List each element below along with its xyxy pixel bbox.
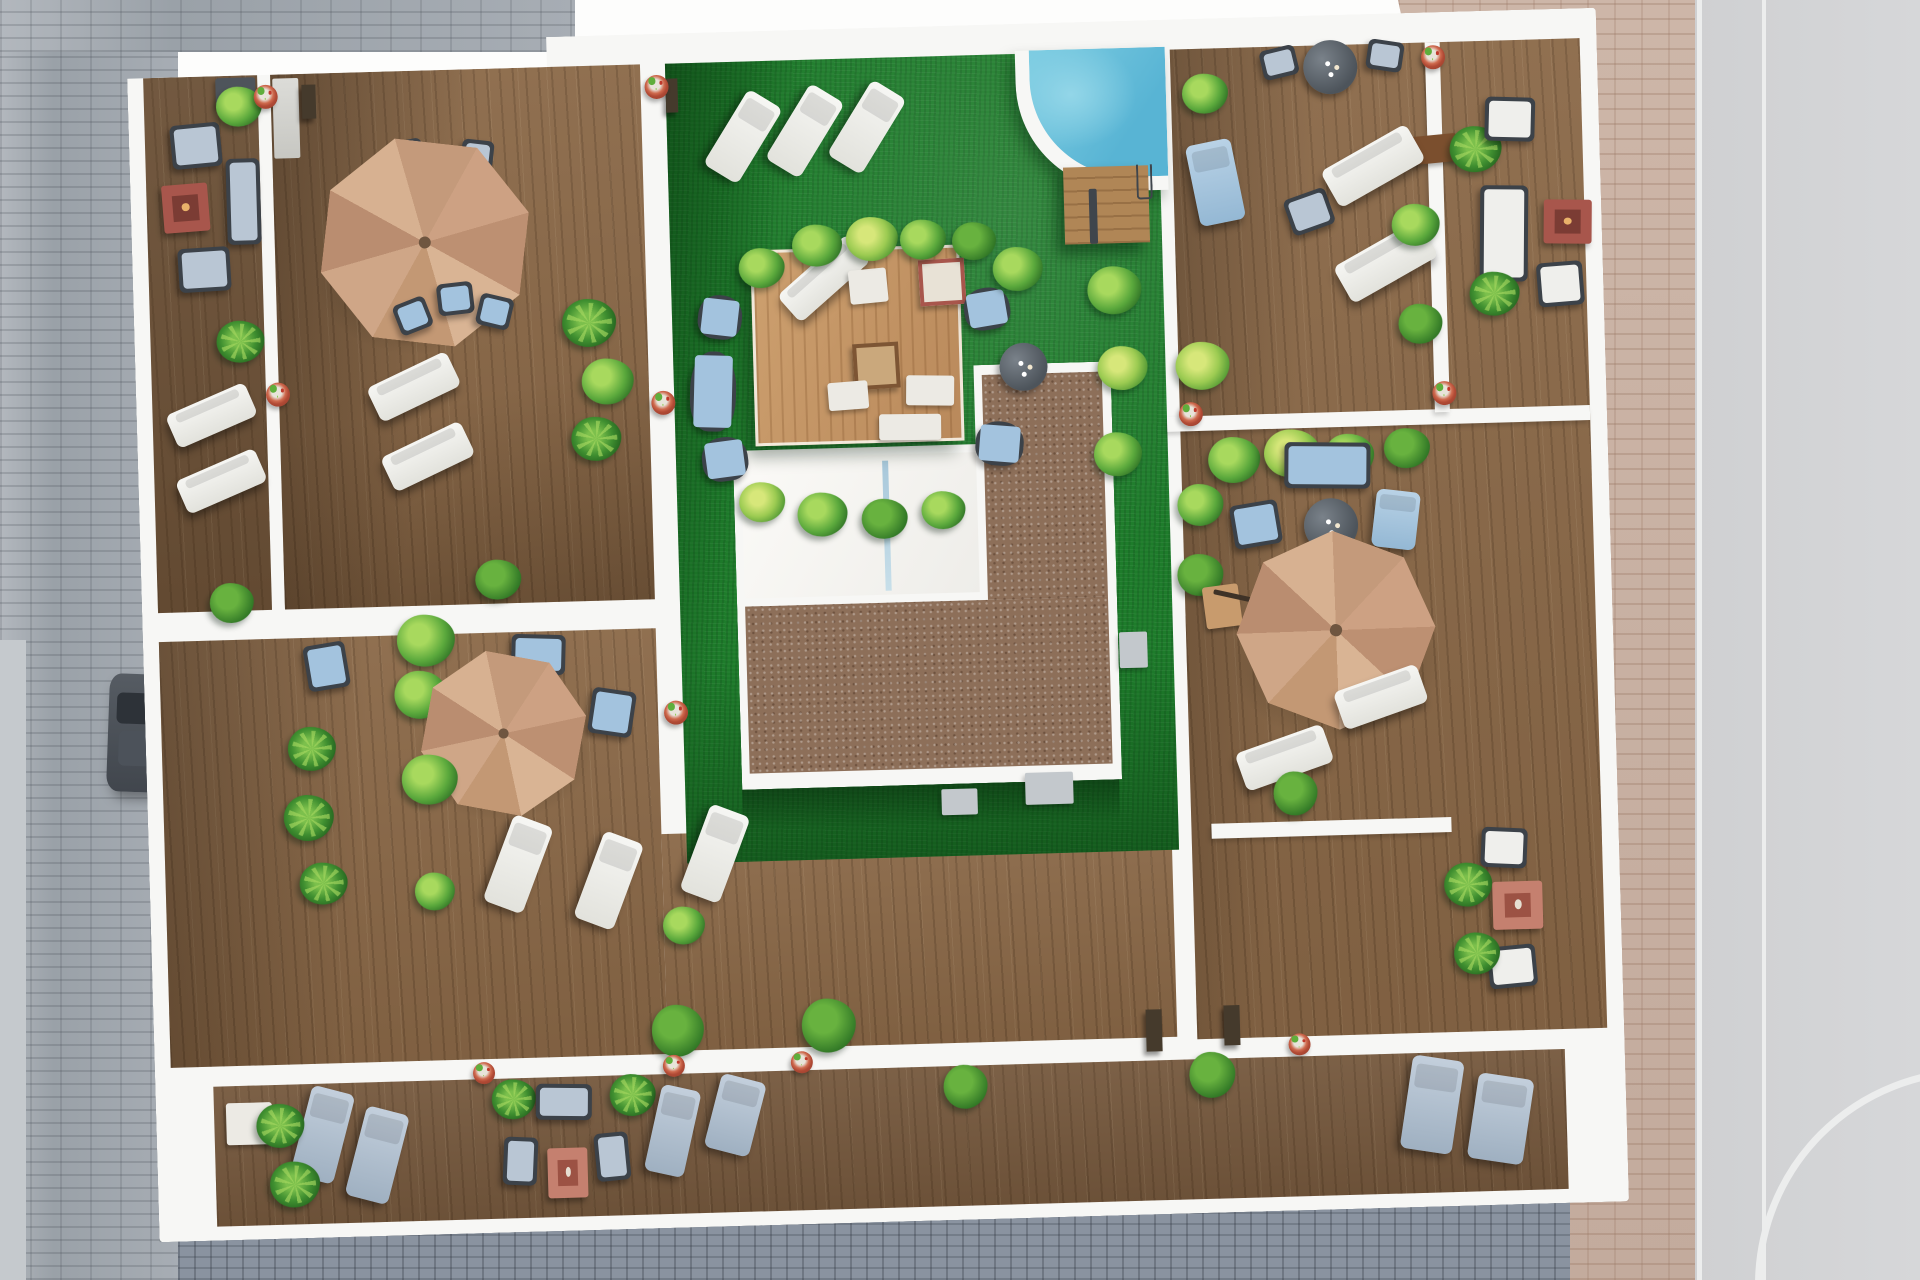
armchair-gray (503, 1136, 539, 1185)
armchair-white (1484, 97, 1535, 142)
sofa-gray-v (225, 158, 261, 245)
counter (272, 78, 300, 159)
street-gray (0, 0, 575, 52)
sofa-white-v (1480, 185, 1529, 281)
post (301, 84, 316, 118)
armchair-white (1536, 260, 1585, 308)
fire-salmon (1492, 881, 1543, 930)
armchair-gray (169, 122, 223, 171)
armchair-gray (593, 1131, 632, 1182)
pot (651, 391, 676, 416)
plant-bush (209, 582, 254, 623)
curb (1697, 0, 1702, 1280)
pad-white (827, 380, 869, 411)
armchair-blue (1229, 499, 1284, 550)
armchair-blue (302, 640, 351, 692)
armchair-gray (177, 246, 232, 293)
gravel (982, 372, 1108, 600)
chair-blue (436, 281, 475, 317)
armchair-white (1480, 827, 1528, 869)
pad-white (906, 375, 954, 405)
sofa-blue-v (689, 351, 737, 432)
railing (1089, 189, 1099, 244)
sofa-blue-h (1284, 442, 1370, 489)
pad (941, 788, 978, 815)
rooftop-building (126, 8, 1629, 1243)
table-red (918, 258, 967, 307)
chair-gray (1365, 38, 1405, 73)
ladder (1136, 164, 1153, 199)
sofa-gray-h (536, 1084, 592, 1120)
fire-red (161, 182, 211, 234)
pad-white (879, 414, 941, 441)
armchair-blue (974, 420, 1025, 468)
pot (1288, 1033, 1311, 1056)
armchair-blue (587, 686, 637, 738)
fire-red (1544, 199, 1592, 243)
rooftop-aerial-render (0, 0, 1920, 1280)
curb (1762, 0, 1766, 1280)
fire-salmon (547, 1147, 588, 1198)
pad (1025, 772, 1074, 805)
post (1223, 1005, 1240, 1045)
pad-white (848, 267, 889, 305)
post (1146, 1009, 1163, 1051)
wood (213, 1049, 1568, 1227)
gravel (745, 597, 1113, 774)
lounger-blue (1371, 488, 1421, 551)
pad (1119, 631, 1148, 668)
lightstrip (0, 640, 26, 1280)
